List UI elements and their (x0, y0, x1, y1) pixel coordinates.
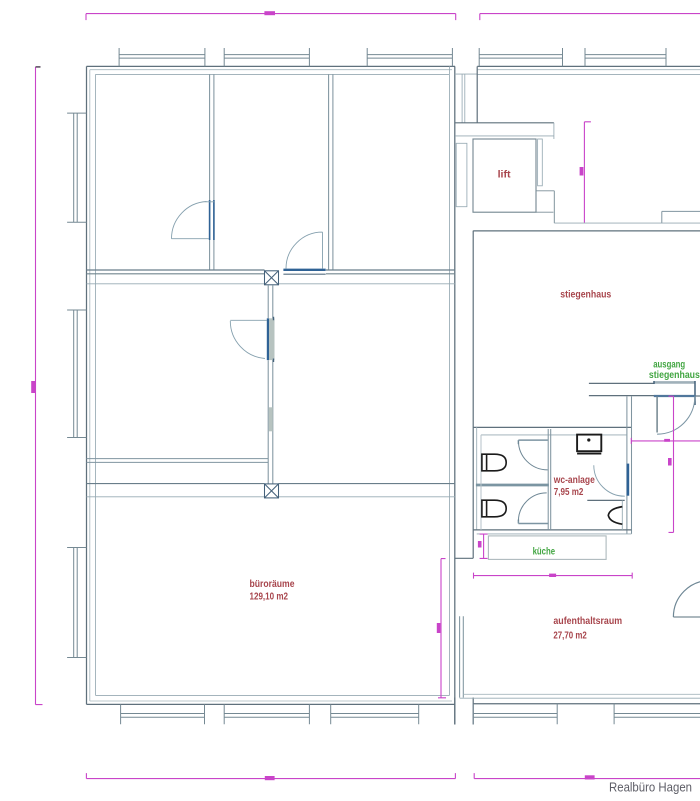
svg-text:büroräume: büroräume (250, 579, 295, 590)
svg-text:aufenthaltsraum: aufenthaltsraum (553, 616, 622, 627)
svg-text:lift: lift (498, 169, 512, 180)
svg-text:7,95 m2: 7,95 m2 (554, 487, 584, 498)
svg-text:ausgang: ausgang (653, 359, 685, 370)
svg-text:wc-anlage: wc-anlage (553, 475, 595, 486)
svg-text:stiegenhaus: stiegenhaus (560, 290, 611, 301)
svg-text:129,10 m2: 129,10 m2 (250, 591, 289, 602)
svg-text:küche: küche (533, 546, 556, 557)
svg-text:27,70 m2: 27,70 m2 (553, 630, 587, 641)
svg-text:stiegenhaus: stiegenhaus (649, 370, 700, 381)
svg-text:Realbüro Hagen: Realbüro Hagen (609, 780, 692, 795)
